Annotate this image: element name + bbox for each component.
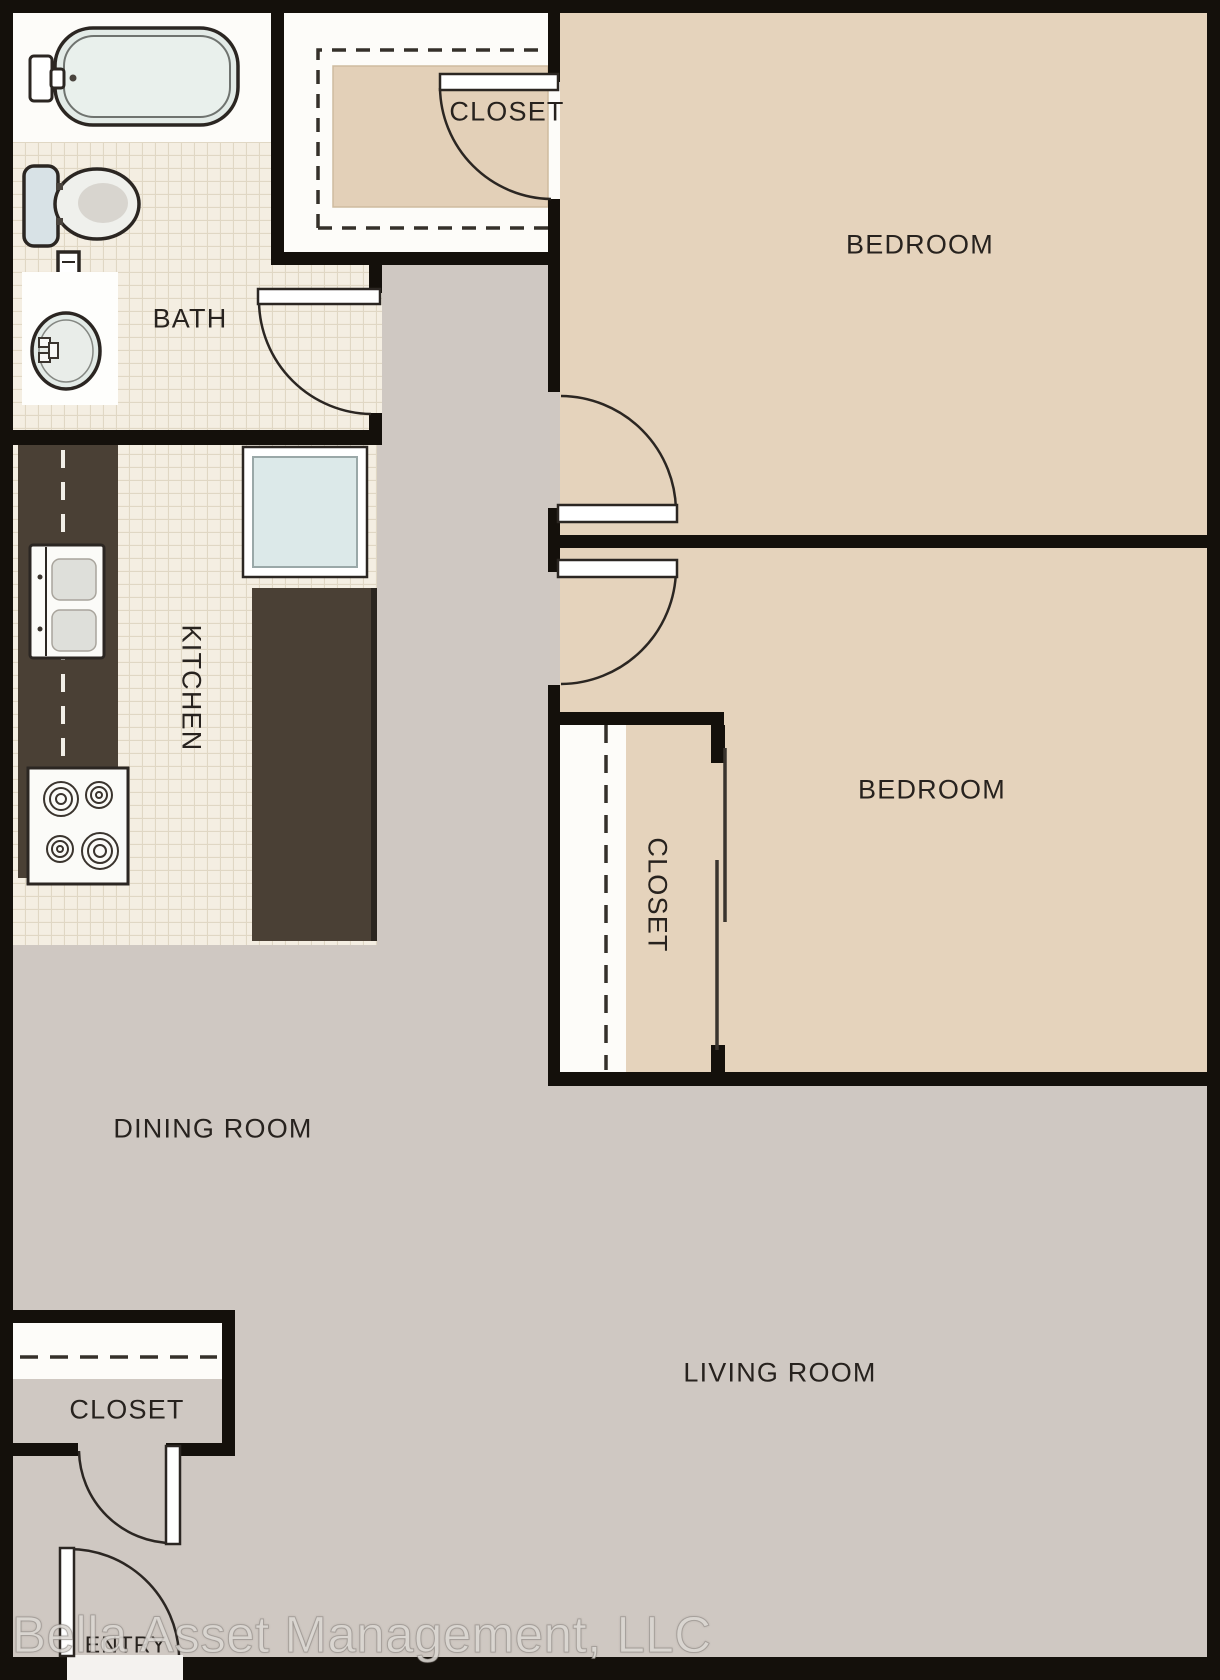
stove-icon	[28, 768, 128, 884]
refrigerator-icon	[30, 545, 104, 658]
bedroom2-door-leaf	[558, 560, 677, 577]
wall-main-vertical-b	[548, 199, 560, 392]
dining-room-label: DINING ROOM	[113, 1114, 312, 1145]
bedroom2-floor	[560, 548, 1207, 1072]
wall-bedroom-divider	[560, 535, 1207, 548]
floor-plan-drawing	[0, 0, 1220, 1680]
floor-plan: BATH CLOSET BEDROOM KITCHEN BEDROOM CLOS…	[0, 0, 1220, 1680]
wall-bedroom2-closet-top	[556, 712, 724, 725]
wall-bedroom2-bottom	[548, 1072, 1207, 1086]
bedroom1-label: BEDROOM	[846, 230, 994, 261]
bath-door-leaf	[258, 289, 380, 304]
wall-top-closet-bottom	[271, 252, 560, 265]
kitchen-counter-right-shadow	[371, 588, 377, 941]
bedroom2-label: BEDROOM	[858, 775, 1006, 806]
tub-faucet-icon	[30, 56, 52, 101]
bedroom1-door-leaf	[558, 505, 677, 522]
bath-label: BATH	[153, 304, 228, 335]
wall-top-closet-left	[271, 13, 284, 265]
wall-bath-right-lower	[369, 413, 382, 445]
kitchen-sink-icon	[243, 447, 367, 577]
wall-main-vertical-a	[548, 13, 560, 82]
entry-closet-shelf-strip	[13, 1323, 222, 1379]
entry-closet-label: CLOSET	[69, 1395, 184, 1426]
bathtub-icon	[30, 28, 238, 125]
bathroom-sink-icon	[22, 272, 118, 405]
wall-entry-closet-bottom-left	[13, 1443, 78, 1456]
wall-entry-closet-right	[222, 1310, 235, 1456]
kitchen-label: KITCHEN	[176, 625, 207, 752]
wall-bath-kitchen-divider	[13, 430, 382, 445]
wall-main-vertical-d	[548, 685, 560, 1086]
watermark-text: Bella Asset Management, LLC	[12, 1605, 712, 1664]
living-room-label: LIVING ROOM	[683, 1358, 876, 1389]
wall-bedroom2-closet-stub-upper	[711, 725, 725, 763]
top-closet-label: CLOSET	[449, 97, 564, 128]
wall-outer-left	[0, 0, 13, 1680]
bedroom1-floor	[560, 13, 1207, 535]
bath-doorway-floor	[369, 292, 382, 413]
toilet-icon	[24, 166, 139, 246]
entry-closet-door-leaf	[166, 1446, 180, 1544]
wall-outer-top	[0, 0, 1220, 13]
top-closet-door-leaf	[440, 74, 558, 90]
kitchen-counter-right	[252, 588, 377, 941]
bedroom2-closet-label: CLOSET	[642, 837, 673, 952]
paper-holder-icon	[58, 252, 79, 274]
bedroom2-closet-white-strip	[560, 725, 626, 1072]
wall-entry-closet-top	[13, 1310, 235, 1323]
wall-outer-right	[1207, 0, 1220, 1680]
